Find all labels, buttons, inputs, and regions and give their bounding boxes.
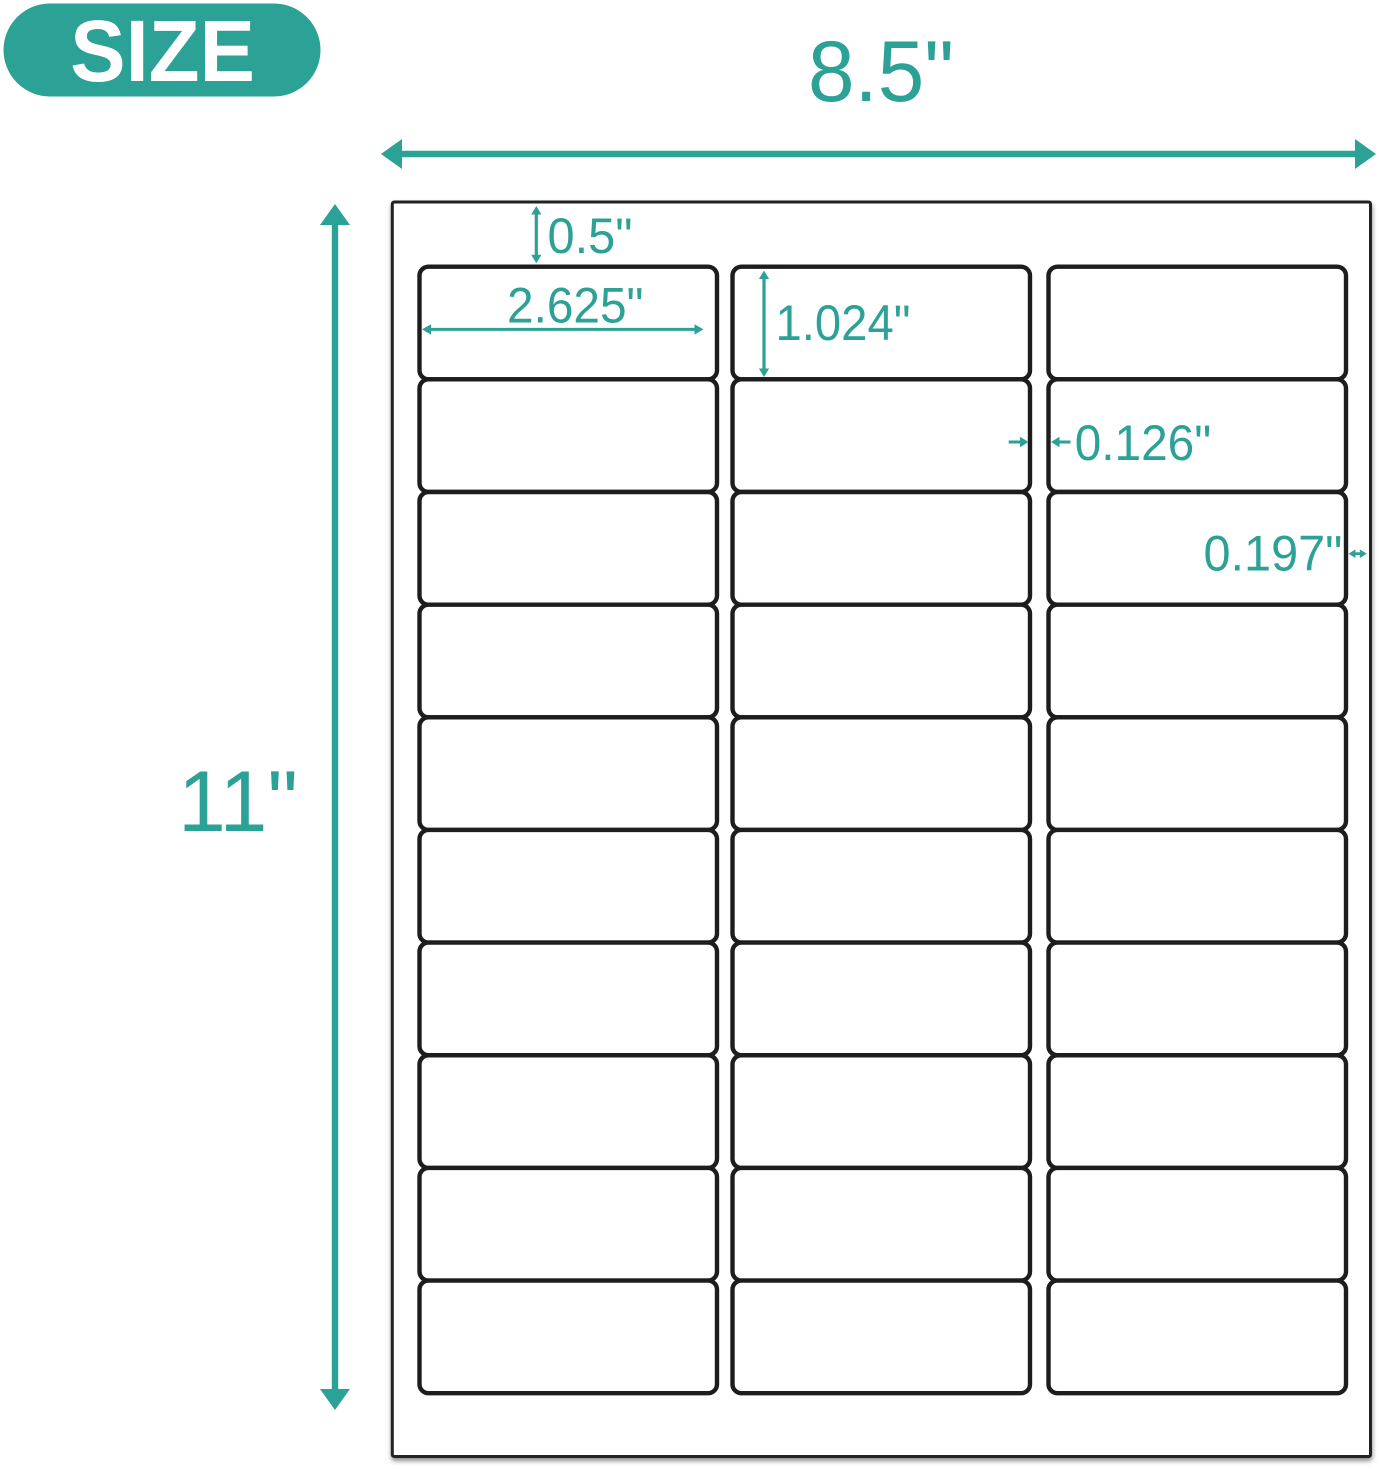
svg-text:SIZE: SIZE xyxy=(70,3,255,100)
svg-text:0.126": 0.126" xyxy=(1075,415,1212,471)
svg-text:1.024": 1.024" xyxy=(776,295,911,351)
svg-text:0.5": 0.5" xyxy=(548,208,633,264)
svg-text:2.625": 2.625" xyxy=(507,278,644,334)
svg-text:0.197": 0.197" xyxy=(1204,526,1343,582)
svg-text:8.5": 8.5" xyxy=(808,24,954,120)
svg-text:11": 11" xyxy=(178,754,298,850)
